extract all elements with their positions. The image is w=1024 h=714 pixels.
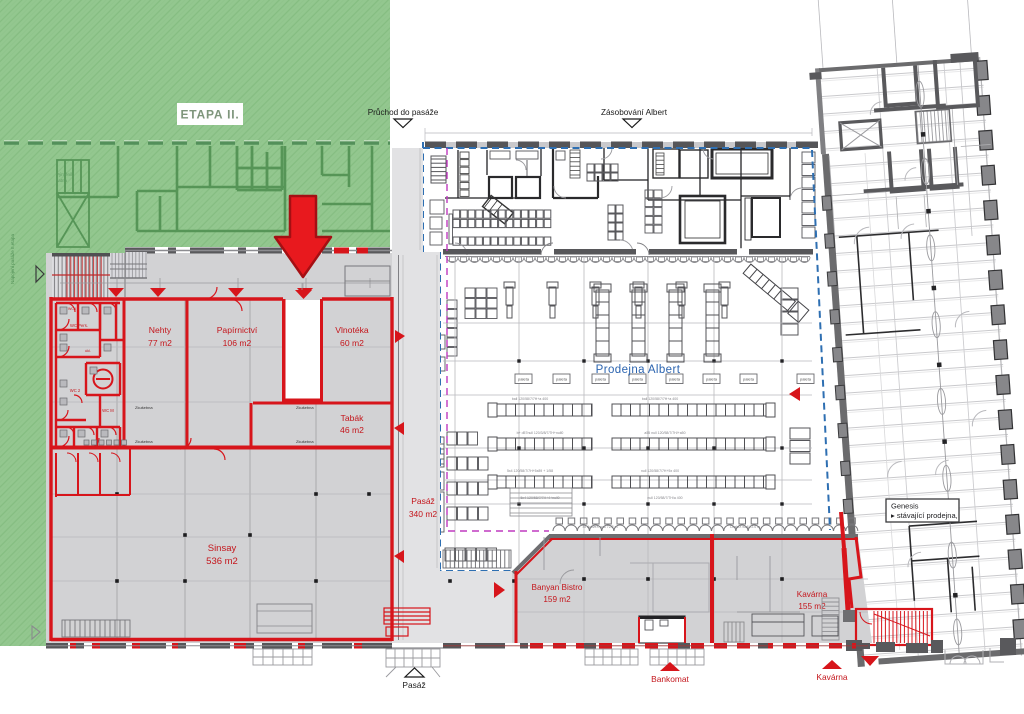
svg-text:77 m2: 77 m2 [148, 338, 172, 348]
svg-text:Vlnotéka: Vlnotéka [335, 325, 369, 335]
svg-text:paleta: paleta [556, 377, 568, 382]
svg-text:536 m2: 536 m2 [206, 556, 238, 567]
svg-text:Zkušebna: Zkušebna [135, 439, 153, 444]
svg-text:Pasáž: Pasáž [411, 496, 435, 506]
svg-text:paleta: paleta [743, 377, 755, 382]
svg-text:Výměník: Výměník [56, 172, 74, 177]
svg-text:ball 120/58/7/7H+a 400: ball 120/58/7/7H+a 400 [642, 397, 678, 401]
svg-text:ETAPA II.: ETAPA II. [181, 108, 240, 122]
svg-text:Kavárna: Kavárna [816, 672, 848, 682]
svg-text:Tabák: Tabák [341, 413, 365, 423]
svg-text:5x4 120/58/7/7H+5x89 + 1/58: 5x4 120/58/7/7H+5x89 + 1/58 [507, 469, 553, 473]
svg-text:paleta: paleta [518, 377, 530, 382]
svg-text:paleta: paleta [632, 377, 644, 382]
svg-text:Papírnictví: Papírnictví [217, 325, 258, 335]
svg-text:Banyan Bistro: Banyan Bistro [532, 583, 583, 592]
svg-text:Napojení pasáže II.etapa: Napojení pasáže II.etapa [10, 233, 15, 284]
svg-text:šatna: šatna [56, 178, 68, 183]
svg-text:60 m2: 60 m2 [340, 338, 364, 348]
svg-text:Genesis: Genesis [891, 502, 919, 511]
svg-text:paleta: paleta [595, 377, 607, 382]
svg-text:paleta: paleta [669, 377, 681, 382]
svg-text:ball 120/58/7/7H+a 400: ball 120/58/7/7H+a 400 [512, 397, 548, 401]
svg-text:340 m2: 340 m2 [409, 509, 438, 519]
svg-text:WC M: WC M [102, 408, 114, 413]
svg-text:Zkušebna: Zkušebna [296, 439, 314, 444]
svg-text:Pasáž: Pasáž [402, 680, 425, 690]
svg-text:null 120/58/7/7H+5x 400: null 120/58/7/7H+5x 400 [641, 469, 679, 473]
svg-text:paleta: paleta [800, 377, 812, 382]
svg-text:▸ stávající prodejna,: ▸ stávající prodejna, [891, 511, 958, 520]
svg-text:paleta: paleta [706, 377, 718, 382]
svg-text:Sinsay: Sinsay [208, 543, 237, 554]
svg-text:Zkušebna: Zkušebna [296, 405, 314, 410]
svg-text:Průchod do pasáže: Průchod do pasáže [368, 107, 439, 117]
svg-text:a55 null 120/58/7/7H/+a50: a55 null 120/58/7/7H/+a50 [644, 431, 685, 435]
svg-text:WC 2: WC 2 [70, 388, 81, 393]
svg-text:úkl.: úkl. [85, 349, 91, 353]
svg-text:null 120/58/7/7H/a 400: null 120/58/7/7H/a 400 [647, 496, 682, 500]
svg-text:Prodejna Albert: Prodejna Albert [596, 364, 681, 376]
svg-text:Nehty: Nehty [149, 325, 172, 335]
svg-text:106 m2: 106 m2 [223, 338, 252, 348]
svg-text:WC Pers.: WC Pers. [70, 323, 88, 328]
svg-text:Bankomat: Bankomat [651, 674, 689, 684]
svg-text:159 m2: 159 m2 [543, 595, 571, 604]
svg-text:Zásobování Albert: Zásobování Albert [601, 108, 668, 117]
svg-text:b+ d57null 120/3/8/7/7H+null0: b+ d57null 120/3/8/7/7H+null0 [517, 431, 564, 435]
svg-text:46 m2: 46 m2 [340, 425, 364, 435]
svg-text:Zkušebna: Zkušebna [135, 405, 153, 410]
svg-text:WC I: WC I [68, 307, 76, 311]
